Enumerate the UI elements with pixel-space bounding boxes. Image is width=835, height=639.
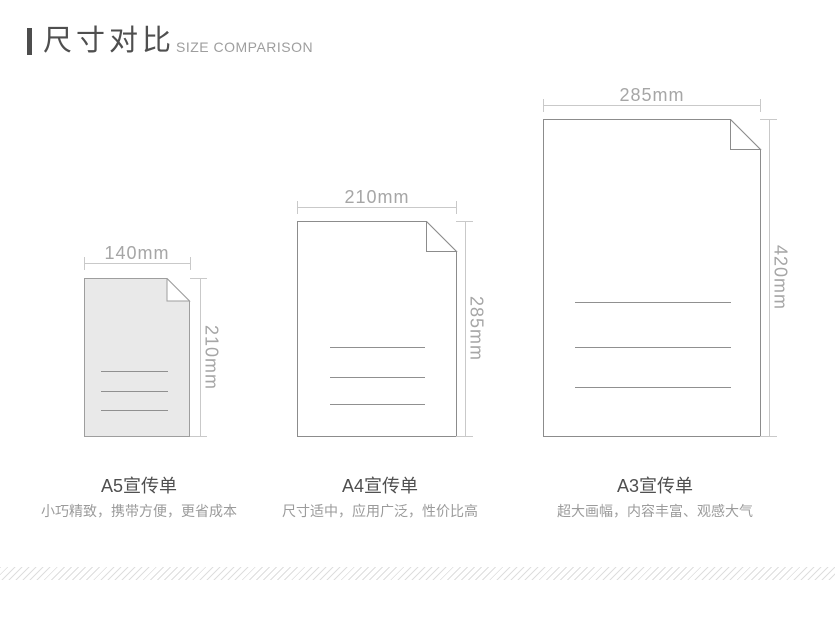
a5-width-tick-left	[84, 257, 85, 270]
hatched-divider-band	[0, 567, 835, 580]
a3-paper	[543, 119, 762, 438]
a5-width-tick-right	[190, 257, 191, 270]
a5-paper	[84, 278, 191, 438]
a3-width-tick-left	[543, 99, 544, 112]
a5-width-dimension-line	[84, 263, 191, 264]
a4-caption: A4宣传单 尺寸适中，应用广泛，性价比高	[270, 476, 490, 519]
a3-paper-outline	[544, 120, 761, 437]
a4-height-label: 285mm	[466, 221, 486, 437]
a5-height-label: 210mm	[201, 278, 221, 437]
a3-width-tick-right	[760, 99, 761, 112]
a3-height-label: 420mm	[770, 119, 790, 437]
page-title: 尺寸对比	[43, 26, 175, 56]
a3-description: 超大画幅，内容丰富、观感大气	[535, 503, 775, 519]
a4-title: A4宣传单	[270, 476, 490, 496]
a4-width-tick-left	[297, 201, 298, 214]
a3-caption: A3宣传单 超大画幅，内容丰富、观感大气	[535, 476, 775, 519]
a5-caption: A5宣传单 小巧精致，携带方便，更省成本	[34, 476, 244, 519]
a4-width-dimension-line	[297, 207, 457, 208]
a4-width-label: 210mm	[297, 188, 457, 206]
header-accent-bar	[27, 28, 32, 55]
a3-width-label: 285mm	[543, 86, 761, 104]
a4-fold-corner	[427, 222, 457, 252]
a5-paper-outline	[85, 279, 190, 437]
page-subtitle: SIZE COMPARISON	[176, 40, 313, 54]
a3-title: A3宣传单	[535, 476, 775, 496]
a5-width-label: 140mm	[84, 244, 190, 262]
a5-fold-corner	[167, 279, 190, 302]
a4-width-tick-right	[456, 201, 457, 214]
size-comparison-page: 尺寸对比 SIZE COMPARISON 140mm 210mm A5宣传单 小…	[0, 0, 835, 639]
a5-description: 小巧精致，携带方便，更省成本	[34, 503, 244, 519]
a3-fold-corner	[731, 120, 761, 150]
a4-description: 尺寸适中，应用广泛，性价比高	[270, 503, 490, 519]
a5-title: A5宣传单	[34, 476, 244, 496]
a4-paper	[297, 221, 458, 438]
a3-width-dimension-line	[543, 105, 761, 106]
